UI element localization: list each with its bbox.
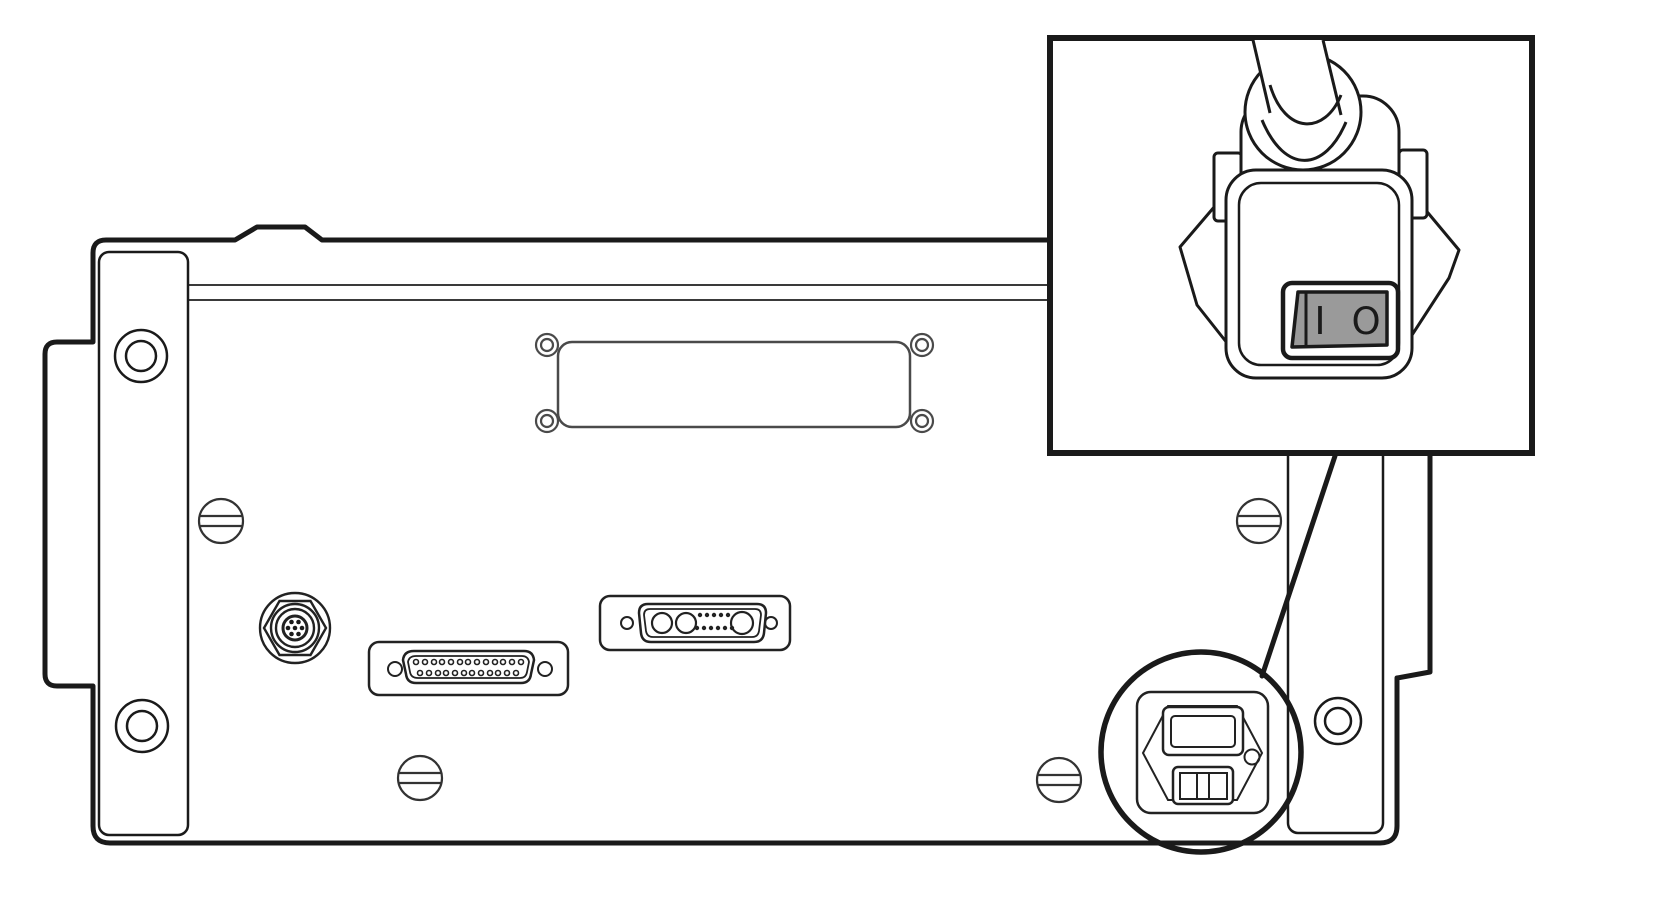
inlet-switch <box>1173 767 1233 804</box>
combo-dsub-connector <box>600 596 790 650</box>
rocker-switch: I O <box>1283 283 1398 358</box>
diagram-canvas: I O <box>0 0 1665 910</box>
slotted-screw <box>398 756 442 800</box>
left-mounting-bracket <box>99 252 188 835</box>
slotted-screw <box>1237 499 1281 543</box>
iec-socket <box>1163 707 1243 755</box>
db25-connector <box>369 642 568 695</box>
slotted-screw <box>1037 758 1081 802</box>
rear-panel-diagram: I O <box>0 0 1665 910</box>
circular-connector <box>260 593 330 663</box>
slotted-screw <box>199 499 243 543</box>
switch-on-label: I <box>1314 299 1325 343</box>
switch-off-label: O <box>1351 300 1380 343</box>
